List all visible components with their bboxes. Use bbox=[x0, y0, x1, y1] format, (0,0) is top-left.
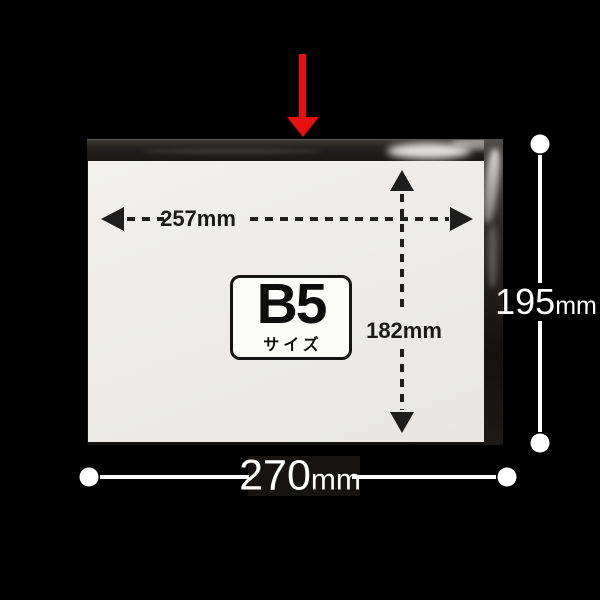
bag-height-unit: mm bbox=[555, 292, 597, 321]
bag-width-label: 270mm bbox=[239, 452, 361, 501]
dimension-dot bbox=[531, 135, 550, 154]
insert-direction-arrow-icon bbox=[287, 54, 319, 137]
paper-height-arrow bbox=[390, 170, 414, 433]
arrow-down-head-icon bbox=[390, 412, 414, 433]
dimension-dot bbox=[80, 468, 99, 487]
paper-width-label: 257mm bbox=[160, 206, 236, 232]
product-image: B5 サイズ bbox=[0, 0, 600, 600]
bag-height-label: 195mm bbox=[495, 281, 597, 323]
arrow-up-head-icon bbox=[390, 170, 414, 191]
arrow-left-head-icon bbox=[101, 207, 124, 231]
paper-height-label: 182mm bbox=[366, 318, 442, 344]
arrow-shaft bbox=[299, 54, 306, 118]
dimension-dot bbox=[531, 434, 550, 453]
bag-width-value: 270 bbox=[239, 452, 311, 501]
dimension-dot bbox=[498, 468, 517, 487]
arrow-right-head-icon bbox=[450, 207, 473, 231]
bag-width-unit: mm bbox=[311, 464, 361, 498]
bag-height-value: 195 bbox=[495, 281, 555, 323]
paper-width-arrow bbox=[101, 207, 473, 231]
arrow-head bbox=[287, 117, 319, 137]
